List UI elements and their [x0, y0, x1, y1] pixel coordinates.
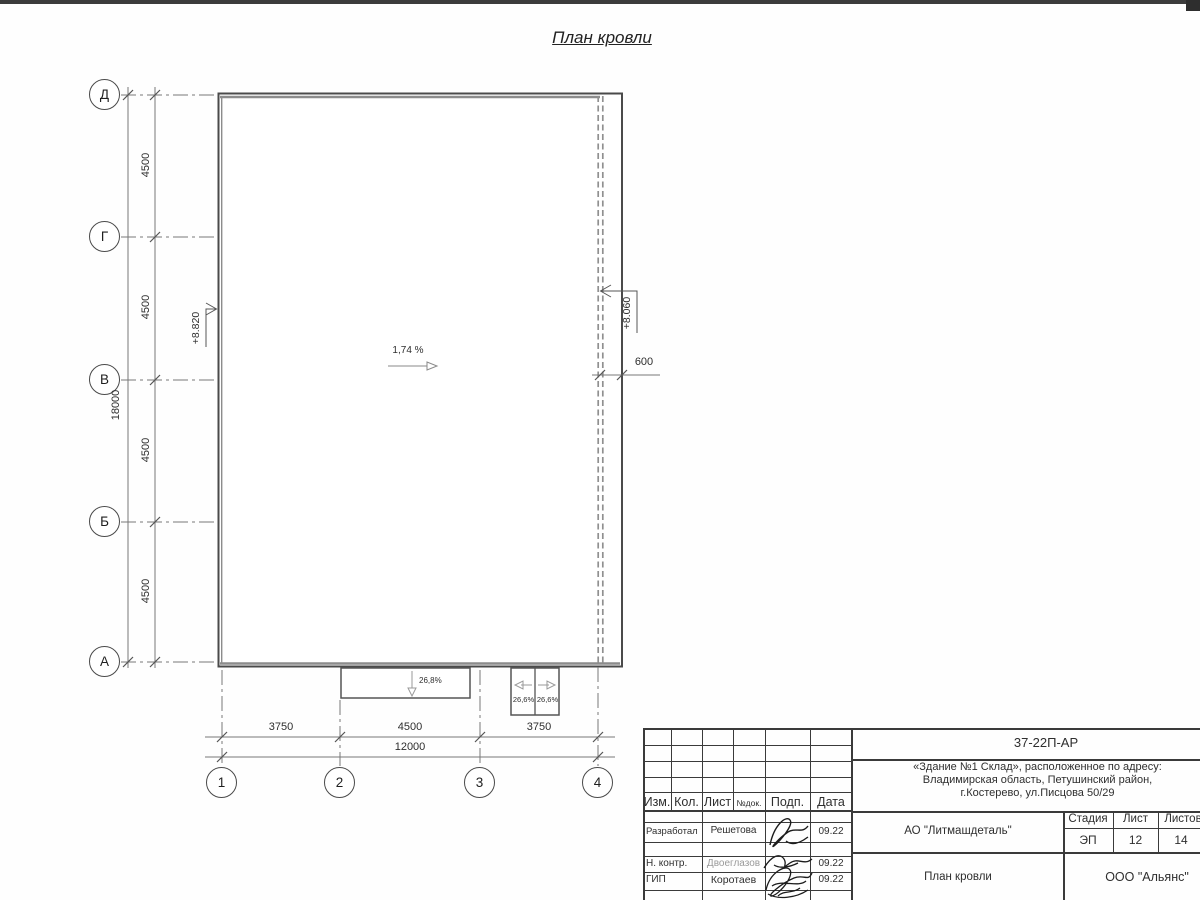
axis-label: Г [101, 229, 108, 244]
sig-date: 09.22 [810, 858, 852, 869]
project-address-line: «Здание №1 Склад», расположенное по адре… [875, 761, 1200, 773]
stamp-line [643, 872, 853, 873]
sheet-number: 12 [1113, 833, 1158, 847]
axis-bubble-3: 3 [464, 767, 495, 798]
col-header-kol: Кол. [671, 795, 702, 809]
canopy-slope-label: 26,8% [419, 676, 442, 685]
canopy-outline [341, 668, 470, 698]
sig-date: 09.22 [810, 826, 852, 837]
signature-reshetova [762, 811, 814, 853]
stamp-line [643, 745, 853, 746]
axis-bubble-a: А [89, 646, 120, 677]
stamp-line [643, 728, 645, 900]
sig-role: ГИП [646, 874, 666, 885]
sig-name: Двоеглазов [702, 858, 765, 869]
stamp-line [643, 761, 853, 762]
col-header-list: Лист [702, 795, 733, 809]
axis-label: 4 [594, 775, 602, 790]
stamp-line [643, 777, 853, 778]
axis-label: 1 [218, 775, 226, 790]
axis-label: 3 [476, 775, 484, 790]
col-header-data: Дата [810, 795, 852, 809]
dim-col-3: 3750 [509, 721, 569, 733]
sig-date: 09.22 [810, 874, 852, 885]
dim-row-3: 4500 [140, 420, 152, 480]
axis-label: В [100, 372, 109, 387]
stamp-line [643, 822, 853, 823]
dim-row-1: 4500 [140, 135, 152, 195]
col-header-izm: Изм. [641, 795, 673, 809]
stamp-line [643, 792, 853, 793]
stage-value: ЭП [1064, 833, 1112, 847]
slope-label: 1,74 % [368, 345, 448, 356]
axis-bubble-2: 2 [324, 767, 355, 798]
stamp-line [643, 856, 853, 857]
dim-col-total: 12000 [380, 741, 440, 753]
dim-col-2: 4500 [380, 721, 440, 733]
axis-bubble-4: 4 [582, 767, 613, 798]
col-header-podp: Подп. [765, 795, 810, 809]
stamp-line [1063, 828, 1200, 829]
stamp-line [853, 852, 1200, 854]
sig-name: Решетова [702, 825, 765, 836]
axis-label: А [100, 654, 109, 669]
roof-plan-sheet: План кровли [0, 0, 1200, 900]
dim-col-1: 3750 [251, 721, 311, 733]
sig-name: Коротаев [702, 874, 765, 886]
ramp-slope-right-label: 26,6% [529, 695, 566, 704]
signature-korotaev [758, 860, 816, 900]
sheet-title: План кровли [858, 871, 1058, 883]
stamp-line [643, 810, 853, 812]
sig-role: Н. контр. [646, 858, 687, 869]
axis-label: 2 [336, 775, 344, 790]
contractor-name: ООО "Альянс" [1065, 870, 1200, 884]
axis-bubble-b: Б [89, 506, 120, 537]
project-address-line: г.Костерево, ул.Писцова 50/29 [875, 787, 1200, 799]
sheets-header: Листов [1158, 813, 1200, 825]
axis-bubble-g: Г [89, 221, 120, 252]
roof-outline [219, 94, 623, 667]
sig-role: Разработал [646, 826, 698, 837]
elevation-left-label: +8.820 [190, 298, 202, 358]
dim-row-4: 4500 [140, 561, 152, 621]
elevation-right-label: +8.060 [621, 283, 633, 343]
stage-header: Стадия [1064, 813, 1112, 825]
axis-bubble-1: 1 [206, 767, 237, 798]
sheet-header: Лист [1113, 813, 1158, 825]
axis-label: Б [100, 514, 109, 529]
dim-row-total: 18000 [110, 375, 122, 435]
axis-label: Д [100, 87, 109, 102]
stamp-line [643, 728, 1200, 730]
axis-bubble-d: Д [89, 79, 120, 110]
elevation-mark-left [206, 303, 217, 347]
sheets-total: 14 [1158, 833, 1200, 847]
client-name: АО "Литмашдеталь" [858, 825, 1058, 837]
ramp-outline [511, 668, 559, 715]
col-header-ndok: №док. [733, 798, 765, 808]
doc-number: 37-22П-АР [896, 735, 1196, 750]
overhang-dim-label: 600 [624, 356, 664, 368]
stamp-line [643, 842, 853, 843]
dim-row-2: 4500 [140, 277, 152, 337]
stamp-line [643, 890, 853, 891]
project-address-line: Владимирская область, Петушинский район, [875, 774, 1200, 786]
